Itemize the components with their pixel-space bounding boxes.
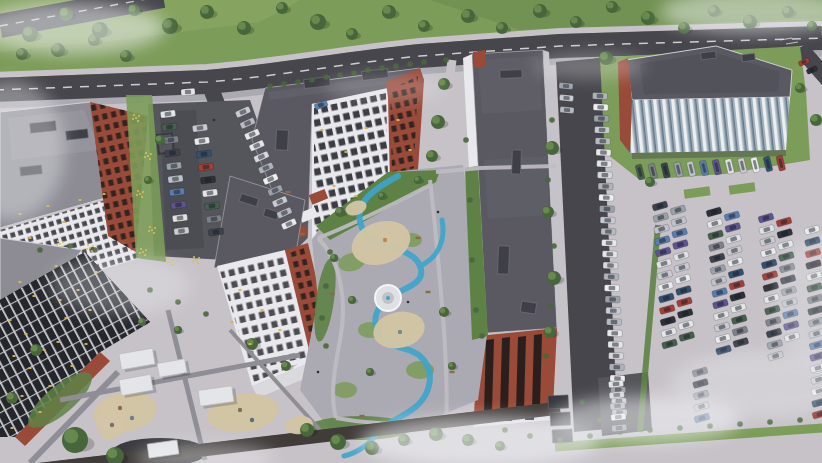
- tree-highlight: [546, 142, 554, 150]
- tree-highlight: [145, 177, 149, 181]
- car-glass: [600, 150, 607, 154]
- tree-highlight: [440, 308, 446, 314]
- tree-highlight: [336, 208, 342, 214]
- slab-roof-panel-1: [478, 56, 542, 114]
- flower: [147, 155, 149, 157]
- car: [594, 115, 609, 122]
- tree-highlight: [7, 393, 14, 400]
- car-glass: [612, 342, 619, 346]
- car-glass: [608, 275, 615, 279]
- car-glass: [607, 263, 614, 267]
- flower: [139, 193, 141, 195]
- roof-vent: [520, 301, 537, 314]
- car-glass: [563, 84, 569, 88]
- flower: [149, 226, 151, 228]
- tree-highlight: [497, 23, 504, 30]
- lit-window: [261, 309, 264, 311]
- play-equipment: [118, 406, 122, 410]
- car-glass: [597, 105, 604, 109]
- lit-window: [321, 129, 324, 131]
- lit-window: [103, 193, 106, 195]
- bush: [351, 70, 357, 76]
- tree-highlight: [301, 424, 309, 432]
- tree: [810, 114, 822, 126]
- person: [437, 211, 440, 214]
- bush: [92, 247, 98, 253]
- lit-window: [279, 329, 282, 331]
- bush: [337, 72, 343, 78]
- car-glass: [609, 297, 616, 301]
- car: [608, 380, 624, 388]
- flower: [197, 262, 199, 264]
- flower: [150, 153, 152, 155]
- person: [213, 119, 216, 122]
- tree-highlight: [543, 207, 550, 214]
- lit-window: [49, 385, 52, 387]
- flower: [198, 257, 200, 259]
- lit-window: [79, 199, 82, 201]
- tree-highlight: [462, 10, 470, 18]
- flower: [135, 117, 137, 119]
- bush: [267, 83, 273, 89]
- flower: [145, 152, 147, 154]
- flower: [140, 248, 142, 250]
- bush: [295, 79, 301, 85]
- lit-window: [29, 367, 32, 369]
- flower: [144, 254, 146, 256]
- bench: [426, 291, 431, 293]
- bush: [547, 303, 553, 309]
- car: [603, 262, 618, 269]
- flower: [61, 246, 63, 248]
- car: [608, 352, 623, 359]
- car-row-moving-car: [181, 88, 195, 95]
- flower: [153, 232, 155, 234]
- flower: [138, 115, 140, 117]
- tree-highlight: [811, 115, 818, 122]
- car-glass: [601, 162, 608, 166]
- car: [606, 318, 621, 325]
- office-glass-facade: [630, 97, 790, 153]
- lit-window: [65, 317, 68, 319]
- tree-highlight: [379, 193, 383, 197]
- lit-window: [239, 289, 242, 291]
- bush: [309, 77, 315, 83]
- bush: [67, 243, 73, 249]
- flower: [141, 196, 143, 198]
- bench: [450, 371, 455, 373]
- tree-highlight: [534, 5, 542, 13]
- roof-vent: [500, 70, 522, 79]
- aerial-render-screenshot: [0, 0, 822, 463]
- car-glass: [613, 393, 620, 398]
- car: [599, 205, 614, 212]
- tree-highlight: [419, 21, 426, 28]
- tree-highlight: [367, 369, 371, 373]
- bush: [467, 197, 473, 203]
- fog-wisp: [50, 255, 190, 315]
- person: [407, 301, 410, 304]
- flower: [193, 256, 195, 258]
- flower: [142, 191, 144, 193]
- flower: [62, 241, 64, 243]
- car: [560, 107, 574, 114]
- tree-highlight: [175, 327, 179, 331]
- flower: [149, 158, 151, 160]
- car: [601, 228, 616, 235]
- tree-highlight: [156, 136, 162, 142]
- tree-highlight: [107, 448, 117, 458]
- bush: [551, 243, 557, 249]
- flower: [144, 156, 146, 158]
- bush: [767, 419, 773, 425]
- lit-window: [11, 427, 14, 429]
- flower: [137, 190, 139, 192]
- lit-window: [55, 265, 58, 267]
- lit-window: [355, 195, 358, 197]
- tree-highlight: [201, 6, 209, 14]
- roof-vent: [701, 51, 717, 60]
- play-equipment: [110, 423, 114, 427]
- car: [594, 126, 609, 133]
- tree-highlight: [548, 272, 556, 280]
- car: [181, 88, 195, 95]
- car-glass: [602, 173, 609, 177]
- lit-window: [63, 221, 66, 223]
- lit-window: [43, 349, 46, 351]
- lit-window: [21, 395, 24, 397]
- tree-highlight: [415, 177, 419, 181]
- bush: [319, 315, 325, 321]
- tree-highlight: [64, 429, 78, 443]
- bush: [549, 117, 555, 123]
- bush: [469, 257, 475, 263]
- tree-highlight: [383, 6, 391, 14]
- lit-window: [33, 295, 36, 297]
- lit-window: [29, 237, 32, 239]
- tree-highlight: [347, 29, 354, 36]
- tree-highlight: [349, 297, 353, 301]
- flower: [145, 249, 147, 251]
- lit-window: [231, 321, 234, 323]
- car: [602, 251, 617, 258]
- flower: [132, 118, 134, 120]
- lit-window: [345, 151, 348, 153]
- tree-highlight: [427, 151, 434, 158]
- bush: [323, 74, 329, 80]
- bench: [286, 191, 291, 193]
- car-glass: [185, 90, 191, 95]
- lit-window: [365, 127, 368, 129]
- tree-highlight: [139, 319, 143, 323]
- car-glass: [599, 139, 606, 143]
- tree-highlight: [31, 345, 38, 352]
- car-row-street-strip-top: [559, 83, 574, 114]
- car-glass: [609, 286, 616, 290]
- tree-highlight: [331, 435, 340, 444]
- car-glass: [598, 116, 605, 120]
- person: [102, 332, 105, 335]
- lit-window: [85, 343, 88, 345]
- flower: [59, 243, 61, 245]
- car: [605, 296, 620, 303]
- flower: [89, 247, 91, 249]
- car-glass: [606, 252, 613, 256]
- flower: [154, 227, 156, 229]
- person: [317, 371, 320, 374]
- flower: [167, 258, 169, 260]
- roof-vent: [66, 129, 89, 140]
- bush: [393, 63, 399, 69]
- car-glass: [611, 320, 618, 324]
- bench: [416, 237, 421, 239]
- bush: [37, 247, 43, 253]
- car: [559, 83, 573, 90]
- fountain: [375, 285, 401, 311]
- lit-window: [9, 319, 12, 321]
- tree-highlight: [607, 2, 614, 9]
- tree-highlight: [121, 51, 128, 58]
- lit-window: [409, 149, 412, 151]
- car-glass: [604, 218, 611, 222]
- car-glass: [564, 108, 570, 112]
- flower: [57, 240, 59, 242]
- car-glass: [605, 229, 612, 233]
- tree-highlight: [238, 22, 246, 30]
- flower: [86, 248, 88, 250]
- tree-highlight: [796, 84, 802, 90]
- car-glass: [603, 196, 610, 200]
- play-equipment: [130, 416, 134, 420]
- car: [596, 149, 611, 156]
- car-glass: [610, 309, 617, 313]
- bush: [473, 307, 479, 313]
- car-glass: [611, 331, 618, 335]
- car: [595, 138, 610, 145]
- flower: [56, 244, 58, 246]
- flower: [137, 120, 139, 122]
- roof-vent: [498, 246, 510, 274]
- car: [604, 273, 619, 280]
- car-glass: [613, 382, 620, 387]
- tree-highlight: [432, 116, 440, 124]
- bush: [479, 333, 485, 339]
- tree-highlight: [277, 3, 284, 10]
- lit-window: [39, 411, 42, 413]
- slab-brick-top-corner: [473, 50, 486, 68]
- car: [598, 183, 613, 190]
- car-glass: [614, 376, 621, 380]
- play-equipment: [383, 238, 387, 242]
- lit-window: [25, 333, 28, 335]
- residential-complex-aerial-scene: [0, 0, 822, 463]
- car: [592, 92, 607, 99]
- fog-wisp: [535, 53, 645, 79]
- car: [607, 330, 622, 337]
- lit-window: [397, 119, 400, 121]
- car-glass: [613, 365, 620, 369]
- tree-highlight: [311, 15, 320, 24]
- bush: [421, 59, 427, 65]
- roof-vent: [512, 150, 522, 174]
- flower: [169, 261, 171, 263]
- bush: [365, 67, 371, 73]
- car: [593, 104, 608, 111]
- bush: [463, 137, 469, 143]
- play-equipment: [238, 408, 242, 412]
- car: [601, 239, 616, 246]
- tree-highlight: [646, 178, 652, 184]
- lit-window: [333, 185, 336, 187]
- car-glass: [613, 354, 620, 358]
- flower: [172, 259, 174, 261]
- flower: [133, 114, 135, 116]
- lit-window: [71, 365, 74, 367]
- play-equipment: [250, 418, 254, 422]
- bush: [543, 353, 549, 359]
- bush: [203, 311, 209, 317]
- lit-window: [13, 355, 16, 357]
- car: [609, 364, 624, 371]
- bush: [379, 65, 385, 71]
- car-glass: [563, 96, 569, 100]
- lit-window: [57, 341, 60, 343]
- tree-highlight: [282, 362, 288, 368]
- car-glass: [597, 94, 604, 98]
- car: [608, 341, 623, 348]
- bush: [545, 177, 551, 183]
- car: [597, 160, 612, 167]
- tree-highlight: [545, 327, 552, 334]
- car: [600, 217, 615, 224]
- flower: [192, 260, 194, 262]
- fog-wisp: [325, 74, 445, 102]
- car-glass: [604, 207, 611, 211]
- bench: [360, 415, 365, 417]
- car: [597, 172, 612, 179]
- flower: [91, 250, 93, 252]
- lit-window: [19, 281, 22, 283]
- flower: [139, 252, 141, 254]
- lit-window: [47, 205, 50, 207]
- flower: [92, 245, 94, 247]
- car: [604, 285, 619, 292]
- flower: [136, 194, 138, 196]
- tree-highlight: [449, 363, 453, 367]
- bush: [323, 283, 329, 289]
- bush: [327, 249, 333, 255]
- flower: [148, 230, 150, 232]
- bench: [330, 293, 335, 295]
- flower: [151, 229, 153, 231]
- tree-highlight: [331, 255, 335, 259]
- bush: [797, 417, 803, 423]
- play-equipment: [398, 330, 402, 334]
- bush: [443, 57, 449, 63]
- car-glass: [602, 184, 609, 188]
- car-glass: [606, 241, 613, 245]
- bush: [323, 343, 329, 349]
- tree-highlight: [571, 17, 578, 24]
- flower: [87, 244, 89, 246]
- car-glass: [599, 128, 606, 132]
- tree-highlight: [642, 12, 650, 20]
- bench: [300, 233, 305, 235]
- flower: [142, 251, 144, 253]
- bush: [281, 81, 287, 87]
- roof-vent: [275, 130, 288, 151]
- flower: [195, 259, 197, 261]
- lit-window: [249, 343, 252, 345]
- roof-vent: [742, 53, 756, 62]
- car: [599, 194, 614, 201]
- car: [606, 307, 621, 314]
- car: [559, 95, 573, 102]
- bush: [407, 61, 413, 67]
